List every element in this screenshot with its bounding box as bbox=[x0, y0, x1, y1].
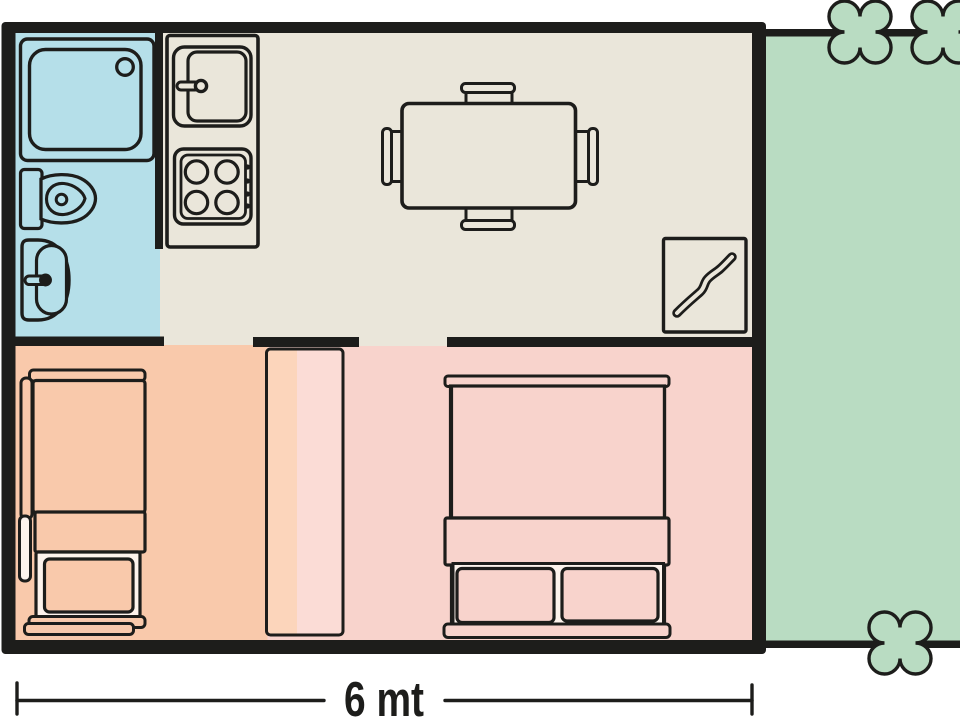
svg-text:6 mt: 6 mt bbox=[344, 673, 424, 720]
